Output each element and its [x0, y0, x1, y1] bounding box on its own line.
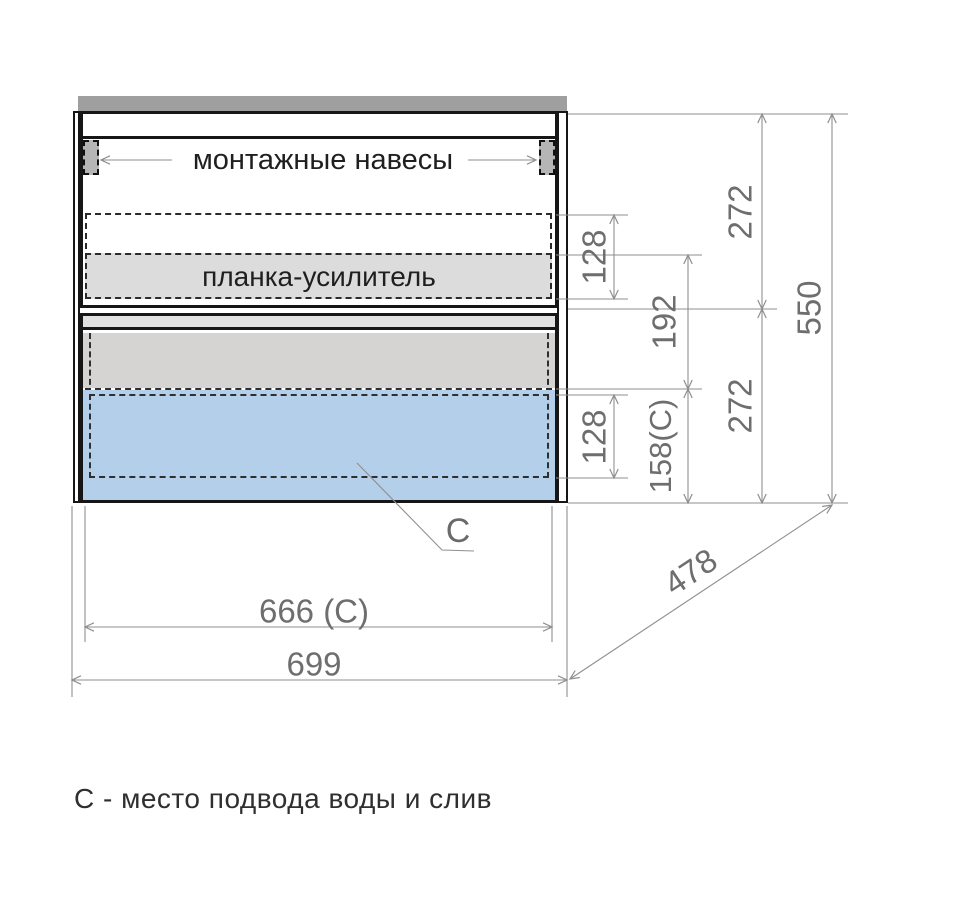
dim-272-top: 272	[722, 184, 759, 239]
c-marker-label: C	[438, 512, 478, 551]
dim-550: 550	[791, 280, 828, 335]
dimension-lines	[72, 114, 832, 680]
dim-line-478-depth	[570, 505, 832, 679]
reinforcement-bar-label: планка-усилитель	[170, 261, 468, 293]
legend-note: С - место подвода воды и слив	[74, 783, 492, 815]
dim-192: 192	[646, 294, 683, 349]
dim-158c: 158(C)	[643, 399, 678, 494]
dim-478: 478	[657, 541, 723, 602]
dim-272-bottom: 272	[722, 378, 759, 433]
leader-lines	[101, 160, 536, 551]
mounting-hangers-label: монтажные навесы	[176, 144, 470, 177]
dim-128-top: 128	[576, 229, 613, 284]
dimension-texts: 128 192 272 158(C) 272 550 128 666 (C) 6…	[259, 184, 828, 682]
dim-666: 666 (C)	[259, 593, 369, 630]
dimension-layer: 128 192 272 158(C) 272 550 128 666 (C) 6…	[0, 0, 970, 920]
dim-128-bottom: 128	[576, 409, 613, 464]
technical-drawing-cabinet: 128 192 272 158(C) 272 550 128 666 (C) 6…	[0, 0, 970, 920]
dim-699: 699	[286, 646, 341, 683]
